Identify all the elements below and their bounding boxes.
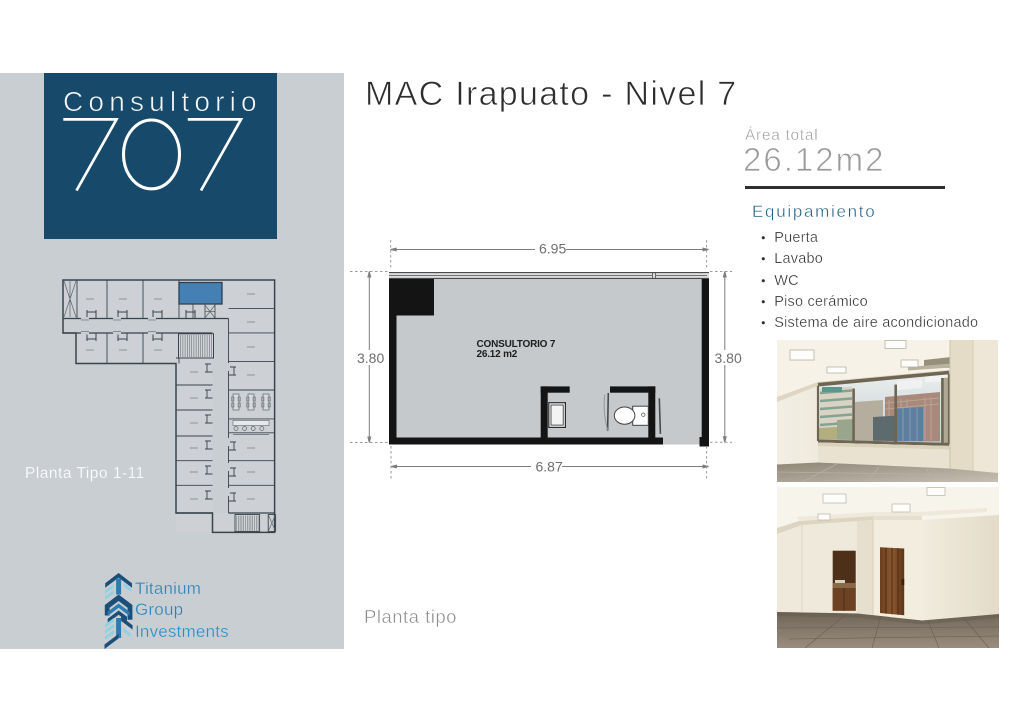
svg-text:26.12 m2: 26.12 m2: [477, 349, 518, 360]
svg-text:3.80: 3.80: [715, 350, 742, 366]
svg-text:6.87: 6.87: [536, 459, 563, 475]
svg-text:6.95: 6.95: [539, 240, 566, 256]
svg-text:3.80: 3.80: [357, 350, 384, 366]
